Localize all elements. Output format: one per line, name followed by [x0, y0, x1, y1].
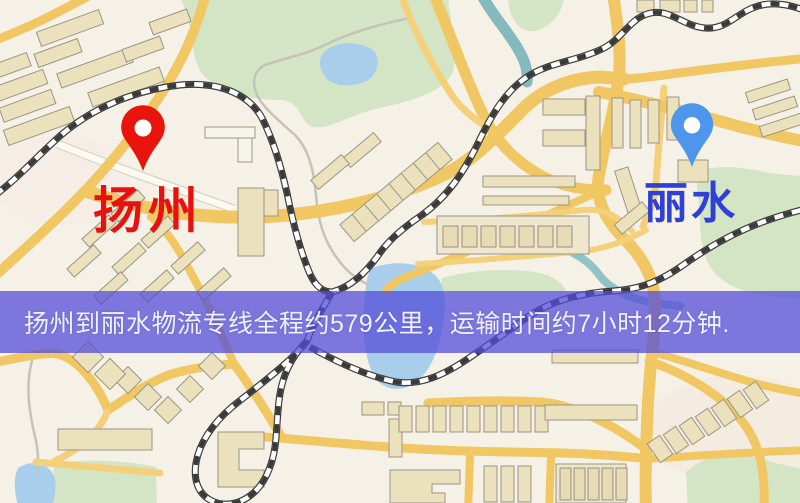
route-info-text: 扬州到丽水物流专线全程约579公里，运输时间约7小时12分钟.	[24, 304, 730, 340]
origin-city-label: 扬州	[93, 183, 203, 239]
map-background: 扬州 丽水	[0, 0, 800, 503]
pond	[320, 43, 378, 85]
destination-city-label: 丽水	[644, 179, 738, 228]
route-info-banner: 扬州到丽水物流专线全程约579公里，运输时间约7小时12分钟.	[0, 291, 800, 353]
map-canvas[interactable]: 扬州 丽水 扬州到丽水物流专线全程约579公里，运输时间约7小时12分钟.	[0, 0, 800, 503]
